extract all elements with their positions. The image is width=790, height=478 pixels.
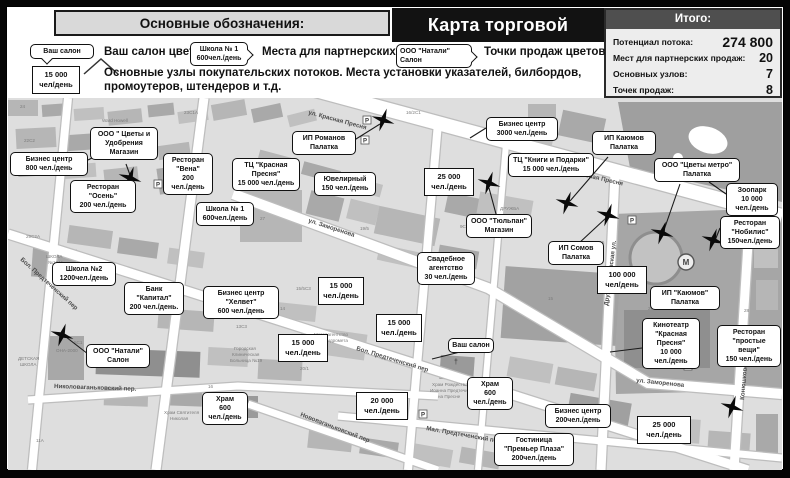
church-cross-icon: †: [454, 359, 458, 366]
totals-panel: Итого: Потенциал потока: 274 800 Мест дл…: [604, 8, 782, 98]
map-microtext: 27: [260, 216, 266, 221]
svg-text:P: P: [630, 218, 634, 224]
svg-text:P: P: [156, 182, 160, 188]
map-callout: ИП РомановПалатка: [292, 131, 356, 155]
map-microtext: 28: [744, 308, 750, 313]
map-callout: Бизнес центр200чел./день: [545, 404, 611, 428]
map-microtext: 20/1: [300, 366, 309, 371]
map-microtext: Ward Howell: [102, 118, 128, 123]
map-microtext: Храм Рождества: [432, 382, 468, 387]
totals-value: 7: [766, 67, 773, 81]
legend-partner-sample: Школа № 1 600чел./день: [190, 42, 248, 66]
building: [756, 414, 778, 454]
totals-row: Потенциал потока: 274 800: [606, 33, 780, 49]
map-callout: ИП "Каюмов"Палатка: [650, 286, 720, 310]
map-callout: ООО "Цветы метро"Палатка: [654, 158, 740, 182]
totals-label: Основных узлов:: [613, 69, 687, 79]
map-microtext: 15/5С3: [296, 286, 311, 291]
map-callout: Ресторан"Осень"200 чел./день: [70, 180, 136, 213]
map-microtext: Николая: [170, 416, 189, 421]
map-microtext: 22С2: [24, 138, 35, 143]
totals-row: Мест для партнерских продаж: 20: [606, 49, 780, 65]
map-callout: Школа № 1600чел./день: [196, 202, 254, 226]
map-callout: Ресторан"Нобилис"150чел./день: [720, 216, 780, 249]
totals-label: Потенциал потока:: [613, 37, 693, 47]
map-microtext: на Пресне: [438, 394, 461, 399]
map-callout: ТЦ "КраснаяПресня"15 000 чел./день: [232, 158, 300, 191]
totals-row: Точек продаж: 8: [606, 81, 780, 97]
map-callout: Свадебноеагентство30 чел./день: [417, 252, 475, 285]
flow-node-box: 100 000чел/день: [597, 266, 647, 294]
map-microtext: Больница №19: [230, 358, 263, 363]
map-microtext: Клиническая: [232, 352, 260, 357]
map-microtext: 16: [208, 384, 214, 389]
map-microtext: 14: [280, 306, 286, 311]
map-callout: Храм600чел./день: [467, 377, 513, 410]
svg-text:М: М: [683, 258, 690, 267]
map-callout: Зоопарк10 000чел./день: [726, 183, 778, 216]
map-callout: Бизнес центр3000 чел./день: [486, 117, 558, 141]
map-microtext: Храм Святителя: [164, 410, 200, 415]
city-map: Мул. Красная Пресняул. Красная Пресняул.…: [8, 98, 782, 470]
legend-node-sample: 15 000 чел/день: [32, 66, 80, 94]
totals-row: Основных узлов: 7: [606, 65, 780, 81]
map-microtext: ОНА-2000: [56, 348, 78, 353]
territory-map-screenshot: Основные обозначения: Карта торговой тер…: [0, 0, 790, 478]
map-callout: Храм600чел./день: [202, 392, 248, 425]
building: [756, 280, 778, 310]
map-callout: Бизнес центр800 чел./день: [10, 152, 88, 176]
totals-label: Точек продаж:: [613, 85, 674, 95]
map-microtext: ДЕТСКАЯ: [18, 356, 39, 361]
legend-pos-label: Точки продаж цветов: [484, 46, 605, 58]
flow-node-box: 25 000чел./день: [637, 416, 691, 444]
flow-node-box: 15 000чел./день: [278, 334, 328, 362]
legend-node-label: Основные узлы покупательских потоков. Ме…: [104, 66, 602, 95]
map-callout: Банк"Капитал"200 чел./день.: [124, 282, 184, 315]
legend-title: Основные обозначения:: [54, 10, 390, 36]
svg-text:P: P: [363, 138, 367, 144]
flow-node-box: 15 000чел./день: [376, 314, 422, 342]
map-callout: Ресторан"простые вещи"150 чел./день: [717, 325, 781, 367]
flow-node-box: 25 000чел./день: [424, 168, 474, 196]
map-microtext: 19/5: [360, 226, 369, 231]
map-callout: ООО " Цветы иУдобренияМагазин: [90, 127, 158, 160]
flow-node-box: 20 000чел./день: [356, 392, 408, 420]
map-callout: ИП СомовПалатка: [548, 241, 604, 265]
map-callout: Ювелирный150 чел./день: [314, 172, 376, 196]
map-microtext: 23С1А: [184, 110, 199, 115]
map-callout: Школа №21200чел./день: [52, 262, 116, 286]
map-callout: ООО "Натали"Салон: [86, 344, 150, 368]
flow-node-box: 15 000чел./день: [318, 277, 364, 305]
totals-value: 274 800: [722, 34, 773, 50]
building: [16, 127, 57, 149]
map-microtext: ШКОЛА: [20, 362, 37, 367]
svg-text:P: P: [365, 118, 369, 124]
totals-value: 20: [759, 51, 773, 65]
map-callout: Ваш салон: [448, 338, 494, 353]
totals-label: Мест для партнерских продаж:: [613, 53, 745, 63]
page-title: Карта торговой территории: [392, 8, 604, 42]
totals-value: 8: [766, 83, 773, 97]
map-callout: Кинотеатр"КраснаяПресня"10 000чел./день: [642, 318, 700, 369]
map-microtext: 13С3: [236, 324, 247, 329]
map-callout: Бизнес центр"Хелвет"600 чел./день: [203, 286, 279, 319]
map-microtext: 16/2С1: [406, 110, 421, 115]
map-microtext: 11А: [36, 438, 45, 443]
map-microtext: 24: [20, 104, 26, 109]
map-microtext: Иоанна Предтечи: [430, 388, 468, 393]
map-microtext: Городская: [234, 346, 256, 351]
map-callout: ООО "Тюльпан"Магазин: [466, 214, 532, 238]
map-callout: Ресторан"Вена"200чел./день: [163, 153, 213, 195]
map-callout: ИП КаюмовПалатка: [592, 131, 656, 155]
legend-pos-sample: ООО "Натали" Салон: [396, 44, 472, 68]
map-callout: Гостиница"Премьер Плаза"200чел./день: [494, 433, 574, 466]
building: [258, 359, 303, 381]
map-microtext: ШКОЛА: [46, 254, 63, 259]
map-microtext: 15: [548, 296, 554, 301]
totals-title: Итого:: [606, 10, 780, 29]
map-microtext: 29С2А: [26, 234, 41, 239]
building: [74, 107, 105, 121]
map-microtext: ДРУЖБА: [500, 206, 520, 211]
legend-salon-sample: Ваш салон: [30, 44, 94, 59]
svg-text:P: P: [421, 412, 425, 418]
map-callout: ТЦ "Книги и Подарки"15 000 чел./день: [508, 153, 594, 177]
